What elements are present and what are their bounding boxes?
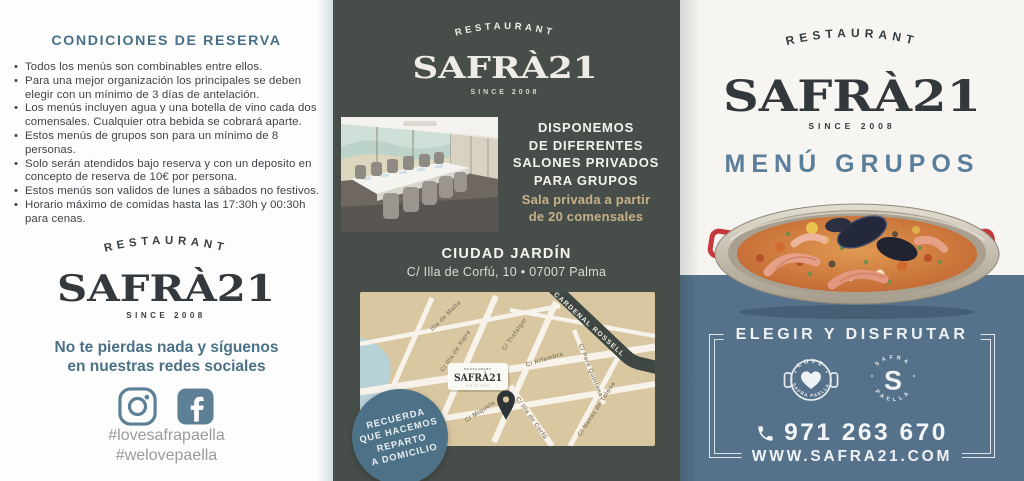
headline-line: SALONES PRIVADOS: [502, 154, 670, 172]
delivery-badge: RECUERDA QUE HACEMOS REPARTO A DOMICILIO: [352, 389, 448, 481]
brand-logo: RESTAURANT SAFRÀ21 SINCE 2008: [36, 222, 296, 324]
s-monogram-stamp-icon: S SAFRA PAELLA: [865, 352, 921, 408]
social-heading-line1: No te pierdas nada y síguenos: [55, 339, 279, 356]
panel-location: RESTAURANT SAFRÀ21 SINCE 2008: [333, 0, 680, 481]
logo-since: SINCE 2008: [126, 311, 205, 320]
facebook-icon[interactable]: [175, 386, 216, 427]
menu-grupos-title: MENÚ GRUPOS: [680, 150, 1024, 179]
social-heading: No te pierdas nada y síguenos en nuestra…: [0, 338, 333, 376]
website-link[interactable]: WWW.SAFRA21.COM: [742, 447, 962, 467]
panel-menu-grupos: RESTAURANT SAFRÀ21 SINCE 2008 MENÚ GRUPO…: [680, 0, 1024, 481]
svg-text:LOVE: LOVE: [796, 359, 825, 370]
social-heading-line2: en nuestras redes sociales: [67, 358, 265, 375]
logo-name: SAFRÀ21: [723, 71, 981, 122]
dining-room-photo: [341, 117, 498, 232]
map-label-name: SAFRÀ21: [454, 372, 502, 384]
phone-number[interactable]: 971 263 670: [784, 419, 948, 447]
map-label-since: SINCE 2008: [466, 385, 490, 388]
location-address: C/ Illa de Corfú, 10 • 07007 Palma: [333, 265, 680, 279]
stamp-safra-paella-text: SAFRA PAELLA: [791, 382, 830, 398]
condition-item: Para una mejor organización los principa…: [13, 75, 320, 103]
phone-icon: [756, 424, 775, 443]
social-icons: [0, 386, 333, 427]
condition-item: Estos menús son validos de lunes a sábad…: [13, 185, 320, 199]
logo-name: SAFRÀ21: [413, 50, 598, 86]
love-paella-stamp-icon: LOVE SAFRA PAELLA: [783, 352, 839, 408]
svg-text:PAELLA: PAELLA: [874, 389, 913, 404]
decorative-frame: ELEGIR Y DISFRUTAR: [709, 334, 995, 458]
logo-restaurant-arch: RESTAURANT: [784, 26, 919, 48]
heart-icon: [801, 371, 821, 389]
hashtag-welove[interactable]: #welovepaella: [116, 447, 217, 464]
subheadline-line: Sala privada a partir: [502, 192, 670, 208]
condition-item: Solo serán atendidos bajo reserva y con …: [13, 158, 320, 186]
subheadline-line: de 20 comensales: [502, 209, 670, 225]
logo-since: SINCE 2008: [471, 89, 540, 96]
map-brand-label: RESTAURANT SAFRÀ21 SINCE 2008: [448, 363, 510, 392]
hashtags: #lovesafrapaella #welovepaella: [0, 426, 333, 465]
paella-photo: [690, 192, 1014, 324]
choose-enjoy-title: ELEGIR Y DISFRUTAR: [724, 325, 981, 345]
brand-stamps: LOVE SAFRA PAELLA: [710, 352, 994, 408]
svg-text:SAFRA PAELLA: SAFRA PAELLA: [791, 382, 830, 398]
conditions-list: Todos los menús son combinables entre el…: [13, 61, 320, 227]
stamp-love-text: LOVE: [796, 359, 825, 370]
instagram-icon[interactable]: [117, 386, 158, 427]
stamp-ring-top-text: SAFRA: [874, 355, 911, 368]
headline-line: PARA GRUPOS: [502, 172, 670, 190]
location-name: CIUDAD JARDÍN: [333, 246, 680, 262]
hashtag-love-safra[interactable]: #lovesafrapaella: [108, 427, 225, 444]
stamp-ring-bottom-text: PAELLA: [874, 389, 913, 404]
brand-logo: RESTAURANT SAFRÀ21 SINCE 2008: [702, 14, 1002, 136]
svg-text:SAFRA: SAFRA: [874, 355, 911, 368]
headline-line: DE DIFERENTES: [502, 137, 670, 155]
brand-logo: RESTAURANT SAFRÀ21 SINCE 2008: [390, 10, 620, 100]
phone-row: 971 263 670: [710, 419, 994, 447]
logo-since: SINCE 2008: [808, 121, 895, 131]
brochure: CONDICIONES DE RESERVA Todos los menús s…: [0, 0, 1024, 481]
private-rooms-headline: DISPONEMOS DE DIFERENTES SALONES PRIVADO…: [502, 119, 670, 225]
stamp-s-letter: S: [884, 366, 902, 396]
map-label-restaurant: RESTAURANT: [464, 367, 491, 371]
headline-line: DISPONEMOS: [502, 119, 670, 137]
condition-item: Estos menús de grupos son para un mínimo…: [13, 130, 320, 158]
logo-restaurant-arch: RESTAURANT: [103, 235, 229, 255]
condition-item: Los menús incluyen agua y una botella de…: [13, 102, 320, 130]
conditions-title: CONDICIONES DE RESERVA: [0, 33, 333, 49]
condition-item: Todos los menús son combinables entre el…: [13, 61, 320, 75]
panel-conditions: CONDICIONES DE RESERVA Todos los menús s…: [0, 0, 333, 481]
logo-restaurant-arch: RESTAURANT: [454, 21, 556, 39]
logo-name: SAFRÀ21: [57, 268, 275, 310]
location-block: CIUDAD JARDÍN C/ Illa de Corfú, 10 • 070…: [333, 246, 680, 279]
